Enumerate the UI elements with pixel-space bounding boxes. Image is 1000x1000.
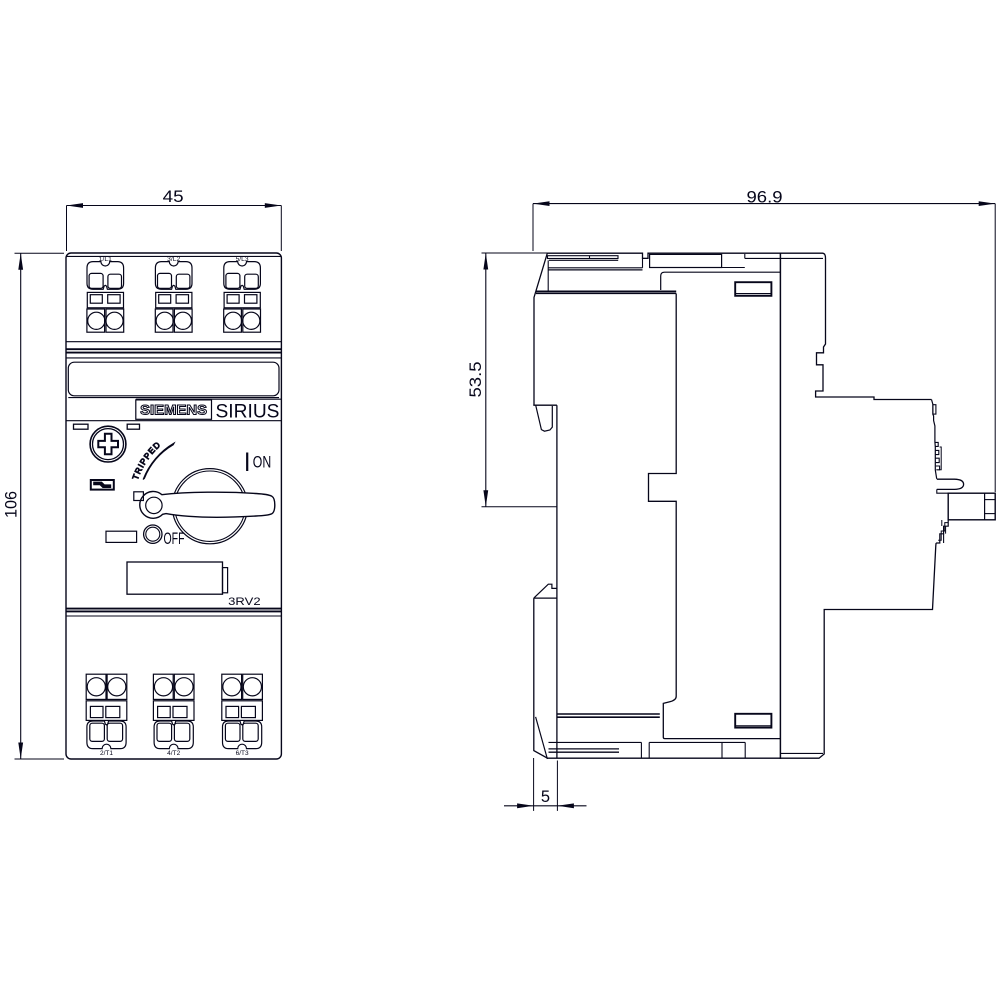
svg-text:3RV2: 3RV2 [228, 596, 260, 608]
svg-text:OFF: OFF [164, 529, 185, 548]
svg-text:1/L1: 1/L1 [99, 256, 113, 263]
svg-text:6/T3: 6/T3 [236, 750, 250, 757]
svg-text:45: 45 [163, 188, 184, 206]
svg-text:SIRIUS: SIRIUS [216, 401, 280, 422]
svg-text:ON: ON [253, 453, 271, 471]
svg-text:SIEMENS: SIEMENS [140, 402, 207, 418]
svg-text:2/T1: 2/T1 [100, 750, 114, 757]
svg-text:3/L2: 3/L2 [167, 256, 181, 263]
svg-text:5/L3: 5/L3 [236, 256, 250, 263]
svg-text:5: 5 [541, 788, 550, 806]
svg-text:4/T2: 4/T2 [167, 750, 181, 757]
svg-text:106: 106 [3, 491, 21, 518]
svg-text:53.5: 53.5 [467, 362, 485, 398]
svg-text:96.9: 96.9 [747, 189, 783, 207]
